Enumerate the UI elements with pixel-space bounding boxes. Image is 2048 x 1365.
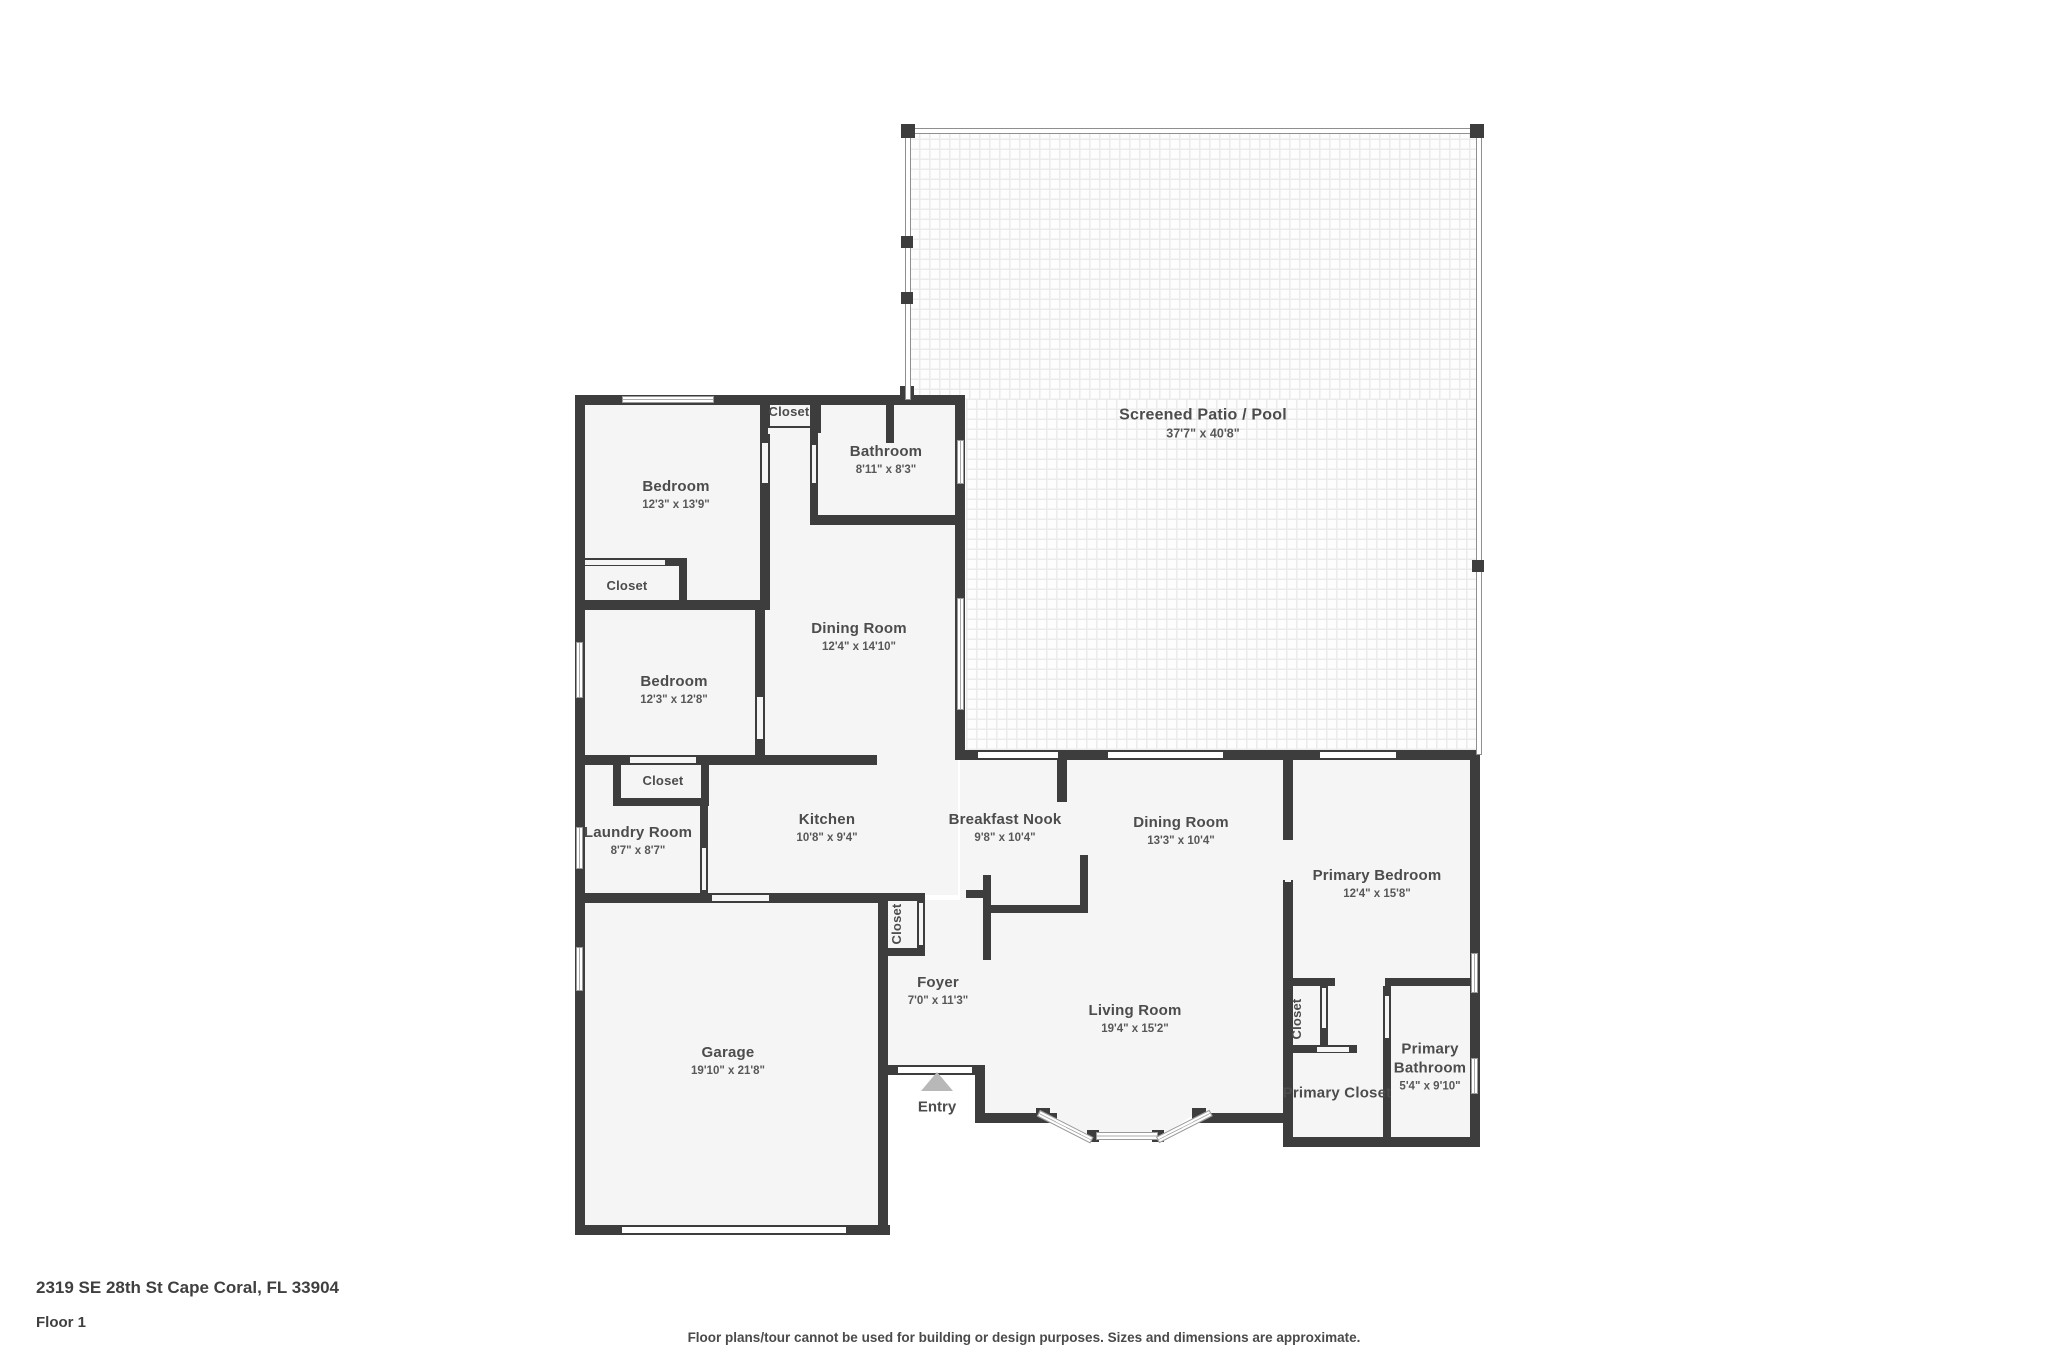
room-label-bedroom-1: Bedroom12'3" x 13'9" bbox=[642, 478, 710, 512]
patio-post bbox=[901, 124, 915, 138]
door-opening bbox=[1108, 752, 1223, 758]
room-name: Garage bbox=[691, 1044, 765, 1063]
wall bbox=[810, 515, 965, 525]
room-name: Bathroom bbox=[850, 443, 922, 462]
room-label-bathroom: Bathroom8'11" x 8'3" bbox=[850, 443, 922, 477]
wall bbox=[983, 875, 991, 960]
patio-post bbox=[1470, 124, 1484, 138]
window bbox=[576, 827, 583, 869]
room-name: Primary Bathroom bbox=[1374, 1041, 1486, 1079]
door-opening bbox=[812, 445, 816, 483]
room-label-closet-primary-hall: Closet bbox=[1289, 999, 1305, 1040]
door-opening bbox=[1285, 840, 1291, 882]
door-opening bbox=[712, 895, 769, 901]
patio-screen-wall bbox=[905, 128, 911, 400]
room-name: Kitchen bbox=[796, 811, 857, 830]
wall bbox=[975, 1065, 985, 1120]
wall bbox=[679, 558, 687, 608]
wall bbox=[613, 798, 709, 806]
wall bbox=[966, 890, 986, 898]
room-name: Foyer bbox=[908, 974, 969, 993]
room-dimensions: 12'3" x 13'9" bbox=[642, 498, 710, 512]
room-label-closet-laundry: Closet bbox=[643, 773, 684, 789]
patio-post bbox=[901, 236, 913, 248]
window bbox=[957, 598, 964, 710]
property-address: 2319 SE 28th St Cape Coral, FL 33904 bbox=[36, 1278, 339, 1298]
room-label-closet-bedroom-1: Closet bbox=[607, 578, 648, 594]
room-dimensions: 12'4" x 14'10" bbox=[811, 640, 907, 654]
room-dimensions: 5'4" x 9'10" bbox=[1374, 1079, 1486, 1093]
window bbox=[957, 440, 964, 484]
room-label-primary-bedroom: Primary Bedroom12'4" x 15'8" bbox=[1313, 867, 1442, 901]
wall bbox=[765, 755, 877, 765]
room-name: Bedroom bbox=[642, 478, 710, 497]
door-opening bbox=[622, 1227, 846, 1233]
room-dimensions: 8'11" x 8'3" bbox=[850, 463, 922, 477]
room-label-garage: Garage19'10" x 21'8" bbox=[691, 1044, 765, 1078]
entry-arrow-icon bbox=[921, 1072, 953, 1091]
floor-label: Floor 1 bbox=[36, 1314, 86, 1331]
wall bbox=[575, 395, 585, 1235]
room-label-laundry-room: Laundry Room8'7" x 8'7" bbox=[584, 824, 692, 858]
patio-screen-wall bbox=[1476, 128, 1482, 755]
wall bbox=[755, 605, 765, 765]
door-opening bbox=[978, 752, 1058, 758]
room-name: Laundry Room bbox=[584, 824, 692, 843]
door-opening bbox=[630, 757, 696, 763]
door-opening bbox=[1385, 996, 1389, 1038]
door-opening bbox=[919, 903, 923, 945]
wall bbox=[575, 600, 770, 610]
patio-post bbox=[1472, 560, 1484, 572]
window bbox=[1096, 1132, 1158, 1140]
patio-screen-wall bbox=[905, 128, 1482, 134]
wall bbox=[886, 395, 894, 443]
room-dimensions: 12'4" x 15'8" bbox=[1313, 887, 1442, 901]
door-opening bbox=[768, 428, 810, 434]
room-dimensions: 7'0" x 11'3" bbox=[908, 994, 969, 1008]
door-opening bbox=[762, 443, 768, 483]
room-name: Closet bbox=[889, 904, 905, 945]
wall bbox=[1385, 978, 1473, 986]
disclaimer-text: Floor plans/tour cannot be used for buil… bbox=[0, 1330, 2048, 1345]
door-opening bbox=[702, 848, 706, 890]
room-name: Closet bbox=[643, 773, 684, 789]
room-dimensions: 12'3" x 12'8" bbox=[640, 693, 708, 707]
window bbox=[622, 396, 714, 403]
door-opening bbox=[757, 697, 763, 739]
wall bbox=[1057, 750, 1067, 802]
window bbox=[576, 947, 583, 991]
room-label-kitchen: Kitchen10'8" x 9'4" bbox=[796, 811, 857, 845]
room-dimensions: 10'8" x 9'4" bbox=[796, 831, 857, 845]
wall bbox=[988, 905, 1083, 913]
room-label-living-room: Living Room19'4" x 15'2" bbox=[1088, 1002, 1181, 1036]
patio-floor bbox=[966, 400, 1476, 750]
room-dimensions: 9'8" x 10'4" bbox=[949, 831, 1062, 845]
wall bbox=[1283, 750, 1293, 840]
room-label-closet-foyer: Closet bbox=[889, 904, 905, 945]
room-name: Dining Room bbox=[811, 620, 907, 639]
room-label-bedroom-2: Bedroom12'3" x 12'8" bbox=[640, 673, 708, 707]
room-name: Screened Patio / Pool bbox=[1119, 406, 1287, 426]
wall bbox=[878, 893, 888, 1235]
patio-post bbox=[901, 292, 913, 304]
room-name: Breakfast Nook bbox=[949, 811, 1062, 830]
patio-floor bbox=[909, 134, 1476, 400]
room-name: Living Room bbox=[1088, 1002, 1181, 1021]
room-name: Dining Room bbox=[1133, 814, 1229, 833]
room-dimensions: 8'7" x 8'7" bbox=[584, 844, 692, 858]
wall bbox=[1080, 855, 1088, 913]
room-label-dining-room-1: Dining Room12'4" x 14'10" bbox=[811, 620, 907, 654]
room-dimensions: 19'4" x 15'2" bbox=[1088, 1022, 1181, 1036]
room-name: Closet bbox=[1289, 999, 1305, 1040]
room-label-foyer: Foyer7'0" x 11'3" bbox=[908, 974, 969, 1008]
room-label-closet-hall: Closet bbox=[769, 404, 810, 420]
room-dimensions: 19'10" x 21'8" bbox=[691, 1064, 765, 1078]
room-label-breakfast-nook: Breakfast Nook9'8" x 10'4" bbox=[949, 811, 1062, 845]
room-label-screened-patio-pool: Screened Patio / Pool37'7" x 40'8" bbox=[1119, 406, 1287, 443]
room-dimensions: 37'7" x 40'8" bbox=[1119, 427, 1287, 443]
entry-label: Entry bbox=[918, 1099, 956, 1116]
room-name: Primary Bedroom bbox=[1313, 867, 1442, 886]
window bbox=[576, 642, 583, 698]
floor-plan-page: Screened Patio / Pool37'7" x 40'8"Bedroo… bbox=[0, 0, 2048, 1365]
door-opening bbox=[1320, 752, 1396, 758]
door-opening bbox=[1317, 1047, 1349, 1052]
room-name: Closet bbox=[769, 404, 810, 420]
room-dimensions: 13'3" x 10'4" bbox=[1133, 834, 1229, 848]
floor-plan-canvas: Screened Patio / Pool37'7" x 40'8"Bedroo… bbox=[0, 0, 2048, 1365]
window bbox=[1471, 953, 1478, 993]
door-opening bbox=[1322, 988, 1326, 1028]
room-name: Closet bbox=[607, 578, 648, 594]
room-label-dining-room-2: Dining Room13'3" x 10'4" bbox=[1133, 814, 1229, 848]
room-name: Bedroom bbox=[640, 673, 708, 692]
room-label-primary-bathroom: Primary Bathroom5'4" x 9'10" bbox=[1374, 1041, 1486, 1094]
door-opening bbox=[585, 560, 665, 565]
